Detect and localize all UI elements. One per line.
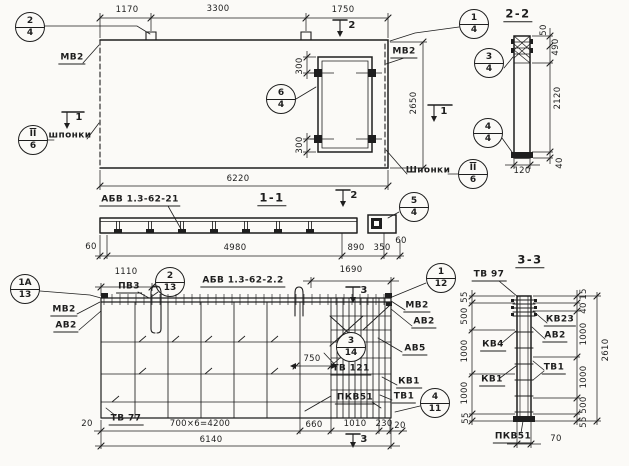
dim-6220: 6220 bbox=[227, 175, 250, 184]
callout-3-4-num: 3 bbox=[475, 49, 503, 64]
dim-20-left: 20 bbox=[81, 420, 92, 429]
dim-350: 350 bbox=[373, 244, 390, 253]
mark-mv2-elev-left: МВ2 bbox=[58, 54, 85, 65]
mark-kv1-s33: КВ1 bbox=[479, 376, 505, 387]
mark-av2-plan-right: АВ2 bbox=[411, 318, 436, 329]
callout-2-13-num: 2 bbox=[156, 268, 184, 283]
callout-6-4-num: 6 bbox=[267, 85, 295, 100]
dim-50: 50 bbox=[540, 24, 549, 35]
dim-1010: 1010 bbox=[344, 420, 367, 429]
callout-3-14-num: 3 bbox=[337, 333, 365, 348]
dim-500-left: 500 bbox=[461, 307, 470, 324]
callout-5-4-sheet: 4 bbox=[400, 208, 428, 222]
dim-700x6: 700×6=4200 bbox=[170, 420, 231, 429]
dim-55-left-top: 55 bbox=[461, 291, 470, 302]
mark-tv121: ТВ 121 bbox=[330, 365, 371, 376]
mark-pkv51-s33: ПКВ51 bbox=[493, 433, 533, 444]
callout-1-12: 1 12 bbox=[426, 263, 456, 293]
callout-1-4-sheet: 4 bbox=[460, 25, 488, 39]
cut-2-top-label: 2 bbox=[348, 21, 355, 31]
dim-1170: 1170 bbox=[116, 6, 139, 15]
dim-6140: 6140 bbox=[200, 436, 223, 445]
dim-750: 750 bbox=[303, 355, 320, 364]
callout-1a-13: 1А 13 bbox=[10, 274, 40, 304]
callout-3-14-sheet: 14 bbox=[337, 348, 365, 362]
mark-kv1-plan: КВ1 bbox=[396, 378, 422, 389]
callout-2-4: 2 4 bbox=[15, 12, 45, 42]
dim-500-right: 500 bbox=[580, 396, 589, 413]
callout-4-11: 4 11 bbox=[420, 388, 450, 418]
dim-20-right: 20 bbox=[394, 422, 405, 431]
mark-tv97: ТВ 97 bbox=[472, 271, 507, 282]
callout-3-4-sheet: 4 bbox=[475, 64, 503, 78]
mark-pkv51-plan: ПКВ51 bbox=[335, 394, 375, 405]
mark-av2-plan-left: АВ2 bbox=[53, 322, 78, 333]
section-title-2-2: 2-2 bbox=[503, 8, 532, 22]
callout-1-12-num: 1 bbox=[427, 264, 455, 279]
callout-keys-left: II 6 bbox=[18, 125, 48, 155]
callout-4-4: 4 4 bbox=[473, 118, 503, 148]
callout-4-11-sheet: 11 bbox=[421, 404, 449, 418]
blueprint-sheet: 1170 3300 1750 2 МВ2 МВ2 300 300 2650 62… bbox=[0, 0, 629, 466]
cut-1-left-label: 1 bbox=[75, 113, 82, 123]
dim-230: 230 bbox=[375, 420, 392, 429]
dim-1000-left-1: 1000 bbox=[461, 340, 470, 363]
callout-keys-right-sheet: 6 bbox=[459, 175, 487, 189]
mark-av2-s33: АВ2 bbox=[542, 332, 567, 343]
callout-4-4-sheet: 4 bbox=[474, 134, 502, 148]
callout-3-4: 3 4 bbox=[474, 48, 504, 78]
dim-40-s22: 40 bbox=[556, 157, 565, 168]
callout-5-4-num: 5 bbox=[400, 193, 428, 208]
dim-2610: 2610 bbox=[602, 339, 611, 362]
dim-2650: 2650 bbox=[410, 92, 419, 115]
label-series-21: АБВ 1.3-62-21 bbox=[99, 196, 180, 207]
callout-3-14: 3 14 bbox=[336, 332, 366, 362]
dim-660: 660 bbox=[305, 421, 322, 430]
label-keys-left: шпонки bbox=[49, 132, 92, 141]
callout-2-13: 2 13 bbox=[155, 267, 185, 297]
dim-60-right: 60 bbox=[395, 237, 406, 246]
mark-kv23: КВ23 bbox=[544, 316, 576, 327]
dim-4980: 4980 bbox=[224, 244, 247, 253]
dim-1000-left-2: 1000 bbox=[461, 382, 470, 405]
mark-pv3: ПВ3 bbox=[116, 283, 142, 294]
dim-70: 70 bbox=[550, 435, 561, 444]
dim-1000-right-2: 1000 bbox=[580, 366, 589, 389]
section-title-3-3: 3-3 bbox=[515, 254, 544, 268]
dim-890: 890 bbox=[347, 244, 364, 253]
dim-40-s33: 40 bbox=[580, 302, 589, 313]
callout-1-12-sheet: 12 bbox=[427, 279, 455, 293]
callout-6-4: 6 4 bbox=[266, 84, 296, 114]
callout-keys-left-num: II bbox=[19, 126, 47, 141]
mark-mv2-elev-right: МВ2 bbox=[390, 48, 417, 59]
callout-2-4-sheet: 4 bbox=[16, 28, 44, 42]
dim-1690: 1690 bbox=[340, 266, 363, 275]
callout-4-11-num: 4 bbox=[421, 389, 449, 404]
cut-1-right-label: 1 bbox=[440, 107, 447, 117]
callout-1a-13-num: 1А bbox=[11, 275, 39, 290]
dim-3300: 3300 bbox=[207, 5, 230, 14]
callout-keys-right: II 6 bbox=[458, 159, 488, 189]
mark-mv2-plan-right: МВ2 bbox=[403, 302, 430, 313]
label-series-22: АБВ 1.3-62-2.2 bbox=[200, 277, 285, 288]
dim-1110: 1110 bbox=[115, 268, 138, 277]
mark-kv4: КВ4 bbox=[480, 341, 506, 352]
section-title-1-1: 1-1 bbox=[257, 192, 286, 206]
callout-keys-left-sheet: 6 bbox=[19, 141, 47, 155]
dim-1000-right-1: 1000 bbox=[580, 323, 589, 346]
dim-1750: 1750 bbox=[332, 6, 355, 15]
mark-av5: АВ5 bbox=[402, 345, 427, 356]
mark-tv77: ТВ 77 bbox=[109, 415, 144, 426]
cut-3-bottom-label: 3 bbox=[360, 435, 367, 445]
callout-1-4: 1 4 bbox=[459, 9, 489, 39]
callout-2-13-sheet: 13 bbox=[156, 283, 184, 297]
cut-2-mid-label: 2 bbox=[350, 191, 357, 201]
mark-tv1-plan: ТВ1 bbox=[392, 393, 416, 404]
callout-1a-13-sheet: 13 bbox=[11, 290, 39, 304]
dim-55-left-bottom: 55 bbox=[462, 412, 471, 423]
mark-tv1-s33: ТВ1 bbox=[542, 364, 566, 375]
dim-300-top: 300 bbox=[296, 57, 305, 74]
dim-300-bottom: 300 bbox=[296, 136, 305, 153]
callout-1-4-num: 1 bbox=[460, 10, 488, 25]
dim-2120: 2120 bbox=[554, 87, 563, 110]
callout-4-4-num: 4 bbox=[474, 119, 502, 134]
callout-keys-right-num: II bbox=[459, 160, 487, 175]
mark-mv2-plan-left: МВ2 bbox=[50, 306, 77, 317]
cut-3-top-label: 3 bbox=[360, 286, 367, 296]
drawing-linework bbox=[0, 0, 629, 466]
label-keys-right: Шпонки bbox=[406, 167, 451, 176]
callout-2-4-num: 2 bbox=[16, 13, 44, 28]
callout-6-4-sheet: 4 bbox=[267, 100, 295, 114]
dim-490: 490 bbox=[552, 38, 561, 55]
dim-60-left: 60 bbox=[85, 243, 96, 252]
dim-15: 15 bbox=[580, 288, 589, 299]
dim-55-right: 55 bbox=[580, 416, 589, 427]
callout-5-4: 5 4 bbox=[399, 192, 429, 222]
dim-120: 120 bbox=[513, 167, 530, 176]
